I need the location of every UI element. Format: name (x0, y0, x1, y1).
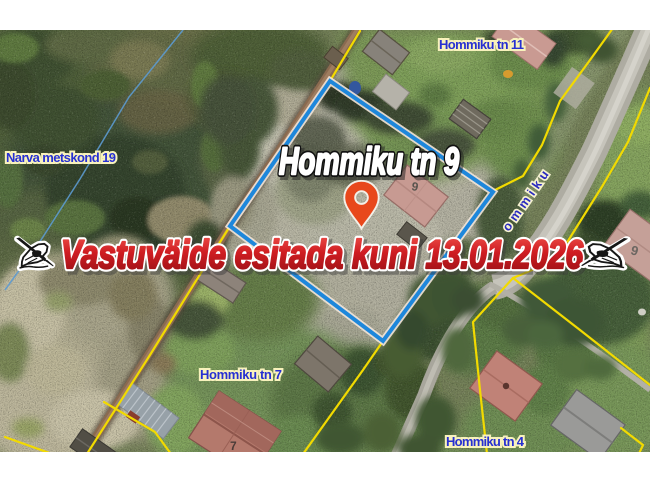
svg-text:Hommiku tn 11: Hommiku tn 11 (439, 37, 524, 52)
svg-text:7: 7 (230, 439, 237, 453)
svg-text:Hommiku tn 7: Hommiku tn 7 (200, 367, 282, 382)
svg-text:Hommiku tn 4: Hommiku tn 4 (446, 434, 525, 449)
svg-text:Narva metskond 19: Narva metskond 19 (6, 150, 116, 165)
svg-text:Vastuväide esitada kuni 13.01.: Vastuväide esitada kuni 13.01.2026 (61, 233, 584, 277)
svg-text:Hommiku tn 9: Hommiku tn 9 (279, 141, 459, 183)
